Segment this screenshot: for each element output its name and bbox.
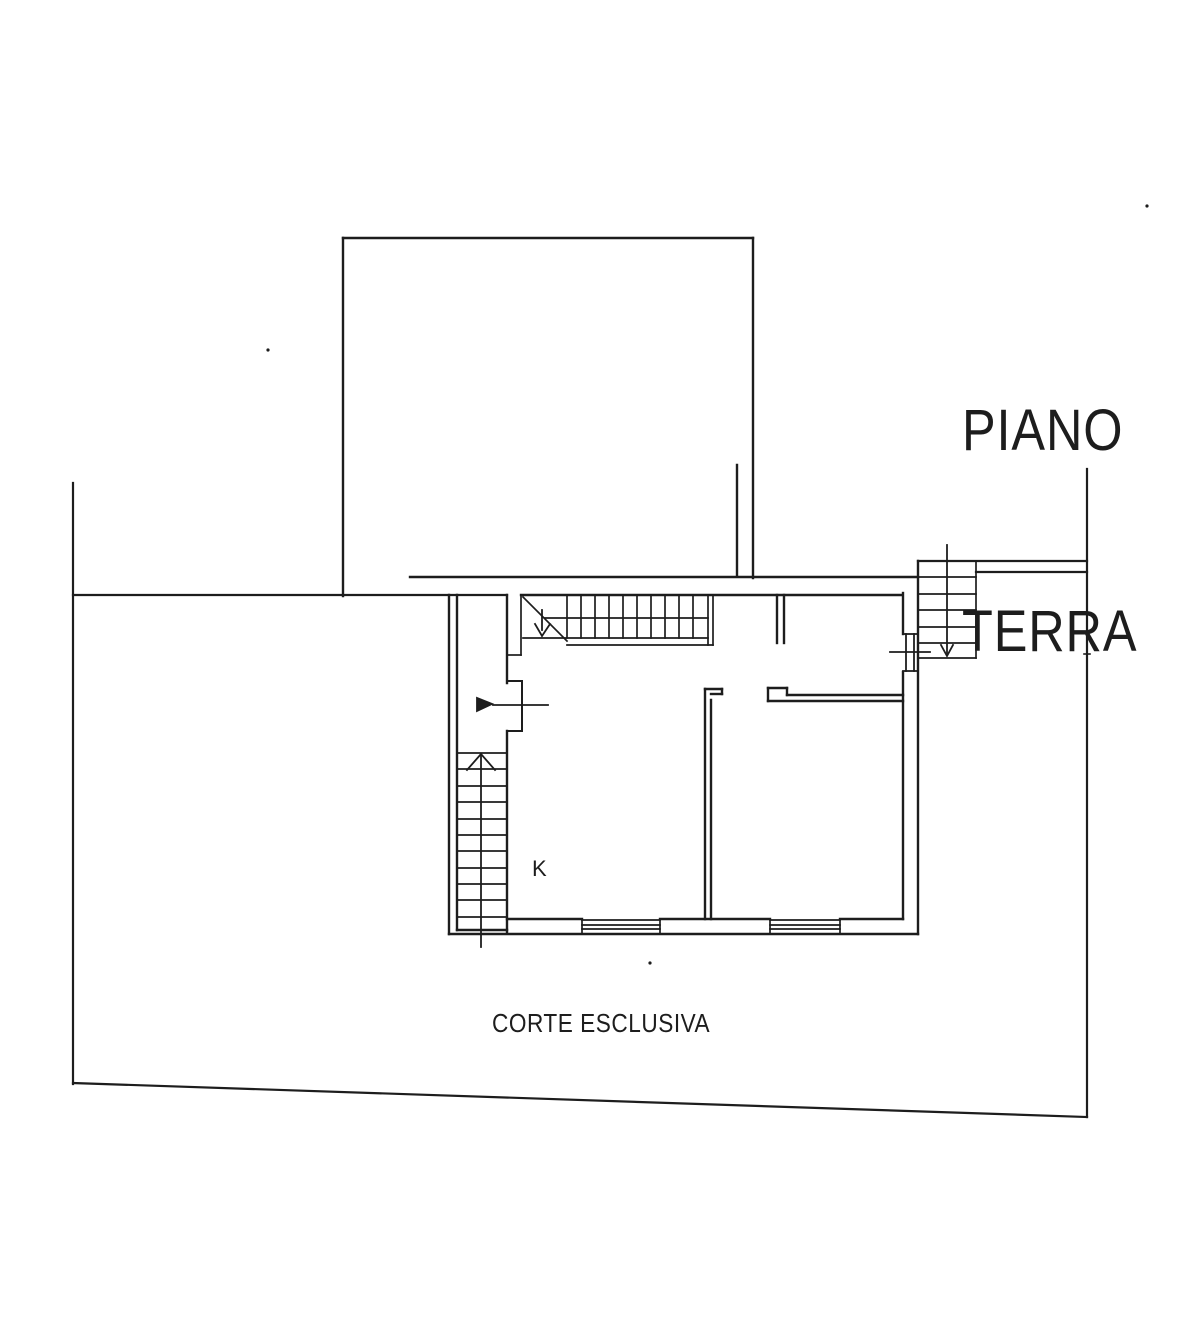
room-label-kitchen: K bbox=[532, 856, 547, 882]
entry-door-symbol bbox=[890, 634, 930, 671]
plan-title-line1: PIANO bbox=[962, 397, 1137, 464]
scan-speck bbox=[648, 961, 651, 964]
courtyard-label: CORTE ESCLUSIVA bbox=[492, 1008, 710, 1039]
plan-title: PIANO TERRA bbox=[962, 263, 1137, 799]
main-building-walls bbox=[449, 561, 918, 934]
window-symbols bbox=[582, 920, 840, 933]
scan-speck bbox=[1145, 204, 1148, 207]
upper-building bbox=[343, 238, 918, 596]
entry-door-recess bbox=[507, 681, 522, 731]
direction-arrows-polygon bbox=[477, 698, 492, 711]
stair-left bbox=[458, 753, 506, 917]
scan-speck bbox=[266, 348, 269, 351]
property-boundary-segment bbox=[73, 1083, 1087, 1117]
plan-title-line2: TERRA bbox=[962, 598, 1137, 665]
floor-plan-page: PIANO TERRA K CORTE ESCLUSIVA bbox=[0, 0, 1204, 1328]
stair-top-interior-segment bbox=[523, 597, 567, 641]
stair-top-interior bbox=[507, 595, 713, 655]
